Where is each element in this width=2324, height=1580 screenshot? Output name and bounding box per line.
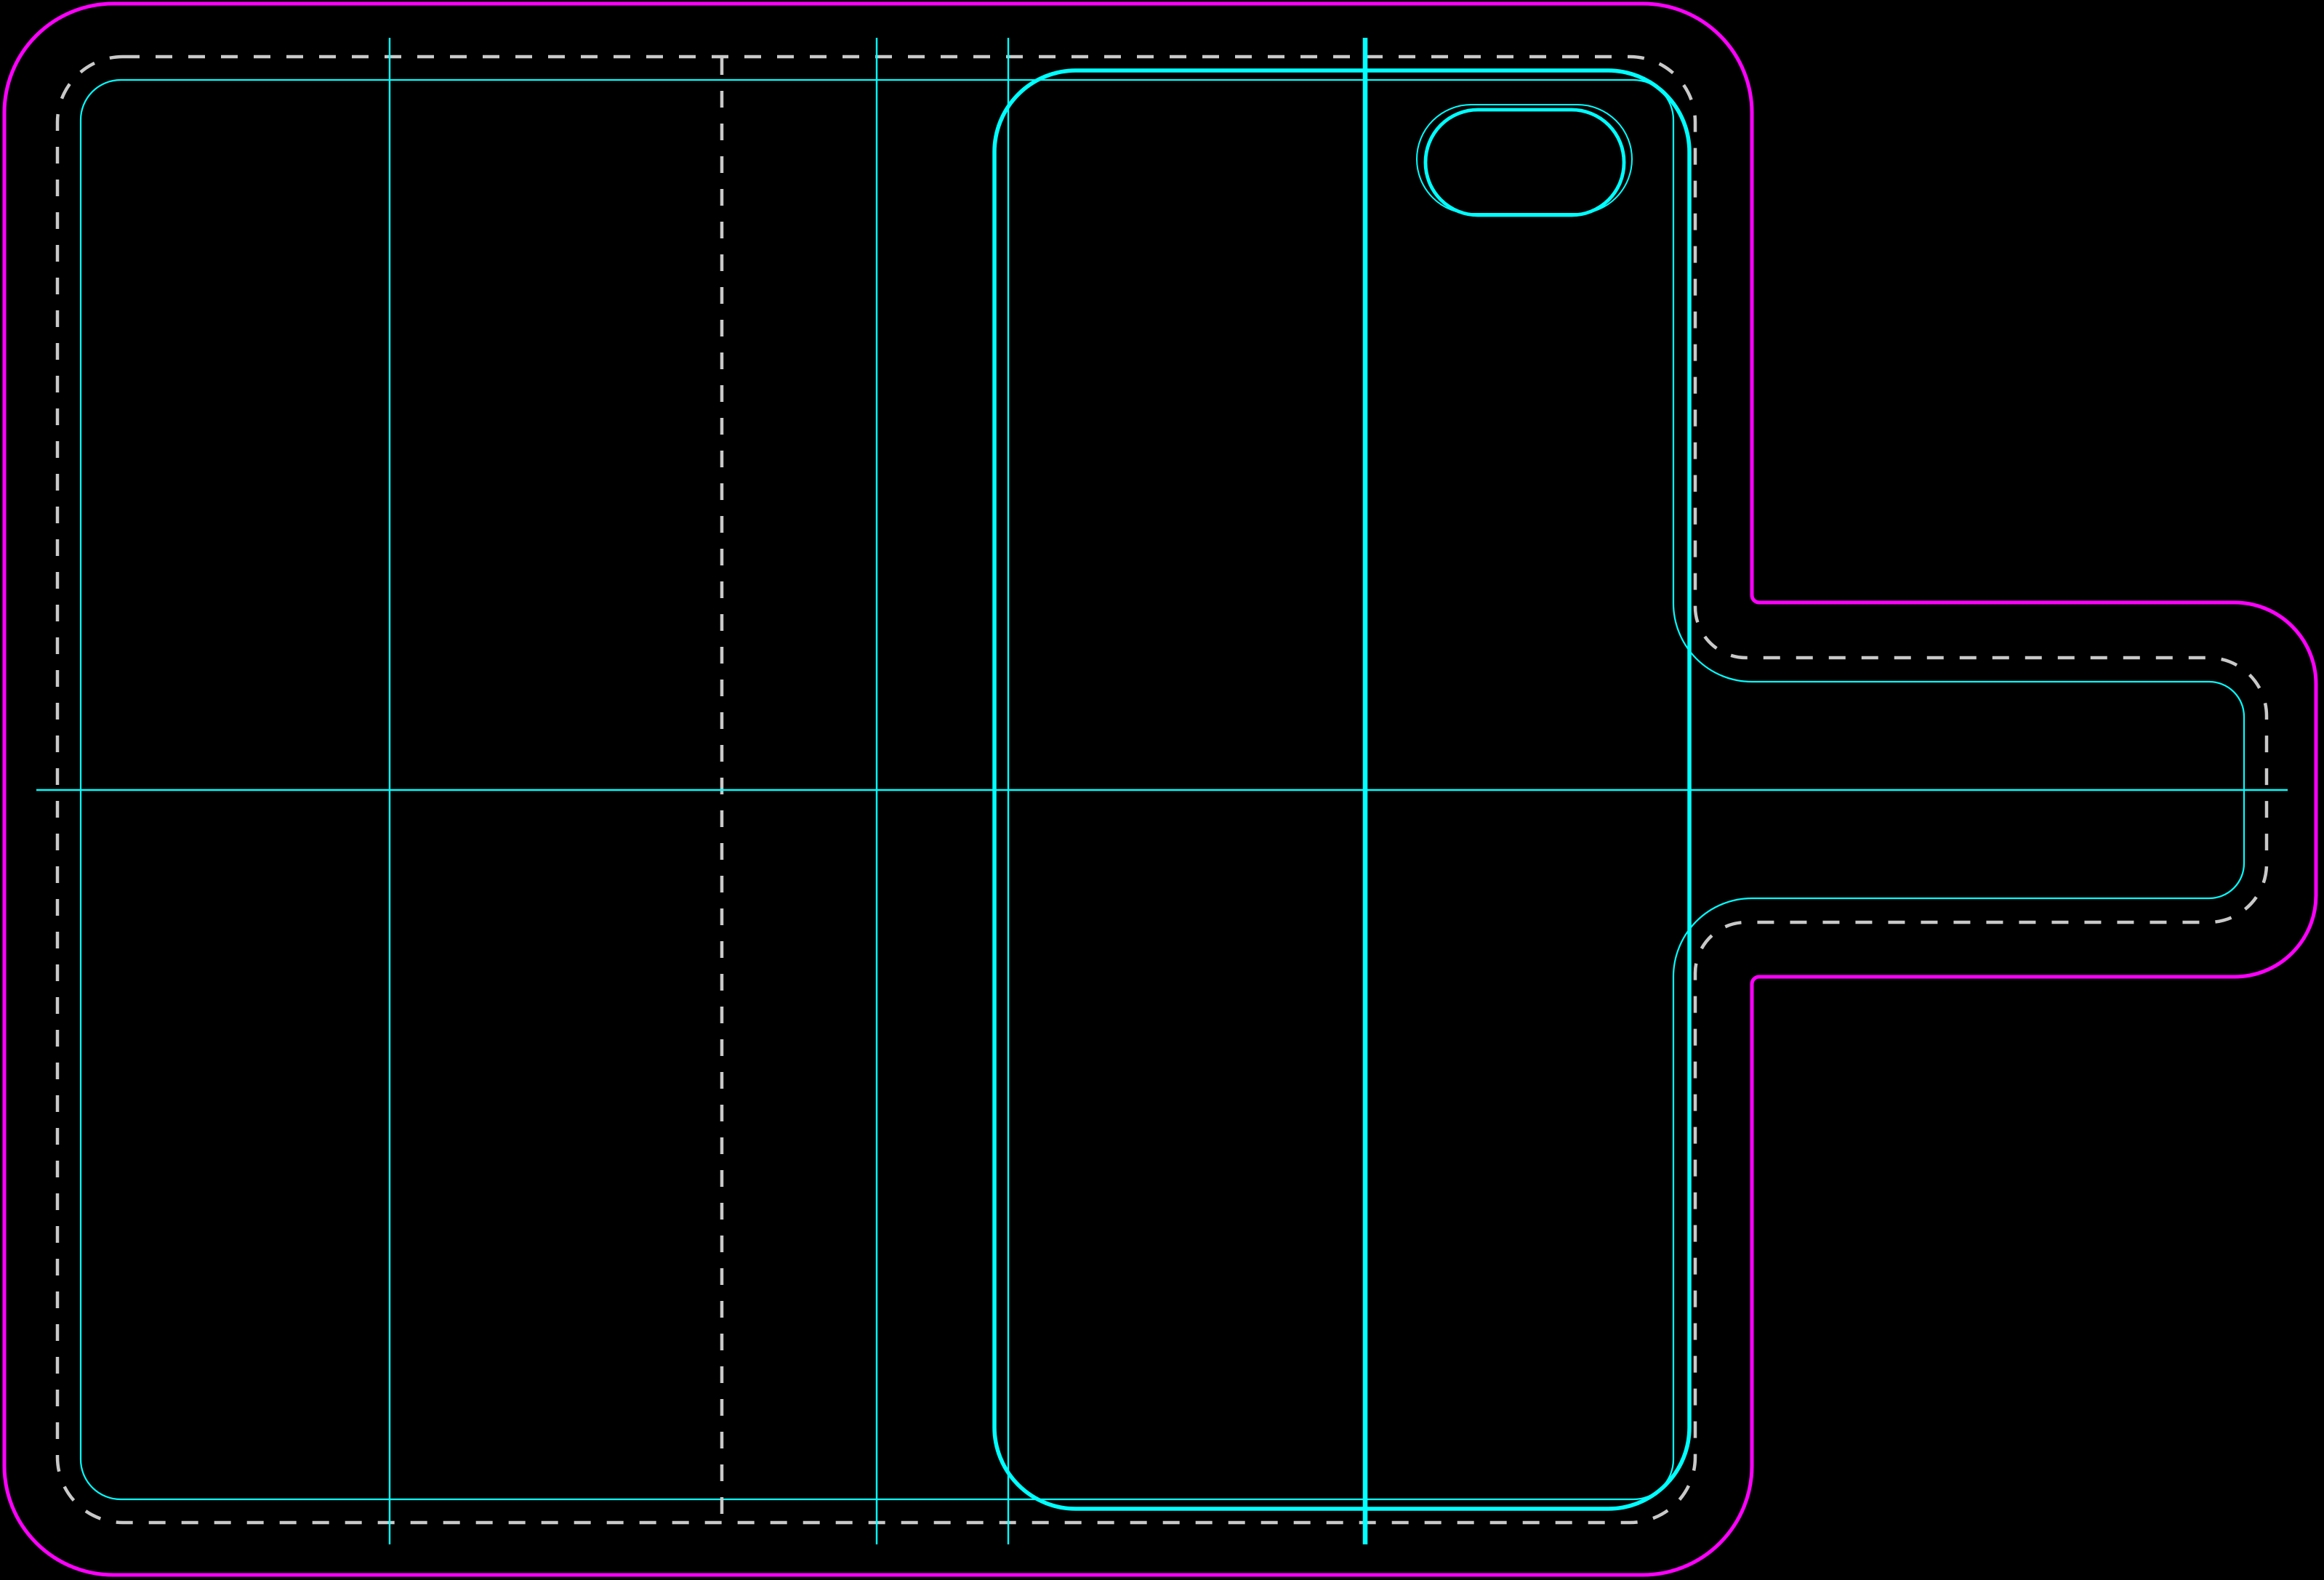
phone-wallet-case-diecut-template bbox=[0, 0, 2324, 1580]
fold-lines bbox=[390, 38, 1365, 1544]
camera-cutout-inner-line bbox=[1426, 110, 1624, 215]
camera-cutout-outer-line bbox=[1417, 105, 1632, 214]
diecut-template-canvas bbox=[0, 0, 2324, 1580]
